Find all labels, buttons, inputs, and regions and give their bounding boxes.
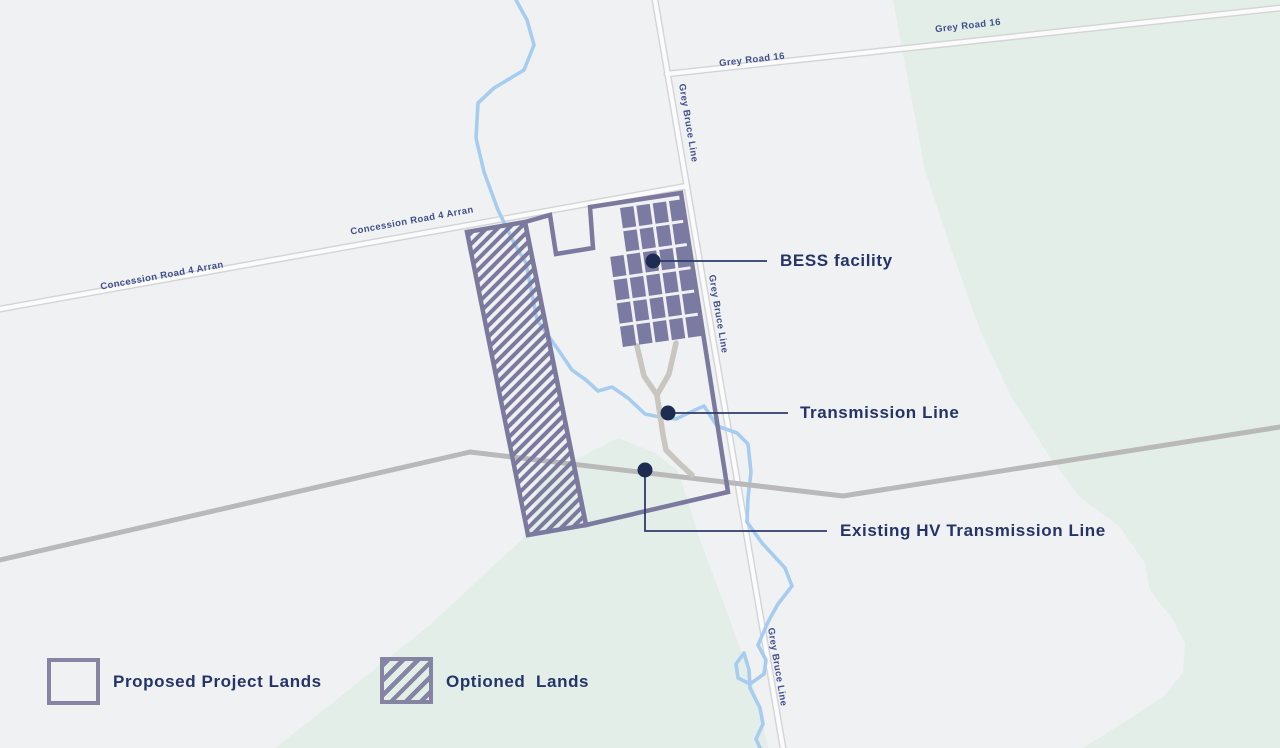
- map-canvas: Concession Road 4 Arran Concession Road …: [0, 0, 1280, 748]
- solar-panel: [627, 253, 643, 275]
- transmission-branch-right: [657, 343, 676, 395]
- solar-panel: [646, 274, 662, 296]
- bess-facility-label: BESS facility: [780, 252, 893, 270]
- legend-swatch-optioned-lands: [380, 657, 433, 704]
- solar-panel: [656, 225, 672, 247]
- solar-panel: [636, 322, 652, 344]
- solar-panel: [653, 202, 669, 224]
- solar-panel: [666, 295, 682, 317]
- solar-panel: [620, 325, 636, 347]
- solar-panel: [610, 255, 626, 277]
- green-area-east: [893, 0, 1280, 748]
- solar-panel: [633, 299, 649, 321]
- existing-hv-callout-dot: [638, 463, 653, 478]
- legend-label-optioned-lands: Optioned Lands: [446, 673, 589, 691]
- solar-panel: [613, 278, 629, 300]
- existing-hv-transmission-line-label: Existing HV Transmission Line: [840, 522, 1106, 540]
- solar-panel: [672, 223, 688, 245]
- solar-panel: [653, 320, 669, 342]
- solar-panel: [685, 316, 701, 338]
- solar-panel: [679, 269, 695, 291]
- transmission-callout-dot: [661, 406, 676, 421]
- solar-panel: [620, 206, 636, 228]
- solar-panel: [669, 199, 685, 221]
- solar-panel: [662, 271, 678, 293]
- solar-panel: [682, 292, 698, 314]
- solar-panel: [636, 204, 652, 226]
- site-map: Concession Road 4 Arran Concession Road …: [0, 0, 1280, 748]
- solar-panel: [623, 229, 639, 251]
- solar-panel: [676, 246, 692, 268]
- solar-panel: [630, 276, 646, 298]
- legend-swatch-proposed-project-lands: [47, 658, 100, 705]
- legend-label-proposed-project-lands: Proposed Project Lands: [113, 673, 322, 691]
- transmission-line-label: Transmission Line: [800, 404, 959, 422]
- road-label-concession-1: Concession Road 4 Arran: [100, 259, 225, 292]
- solar-panel: [669, 318, 685, 340]
- transmission-branch-left: [637, 346, 657, 395]
- bess-callout-dot: [646, 254, 661, 269]
- solar-panel: [640, 227, 656, 249]
- optioned-lands-area: [467, 222, 586, 535]
- solar-panel: [649, 297, 665, 319]
- solar-panel: [617, 302, 633, 324]
- solar-panel: [659, 248, 675, 270]
